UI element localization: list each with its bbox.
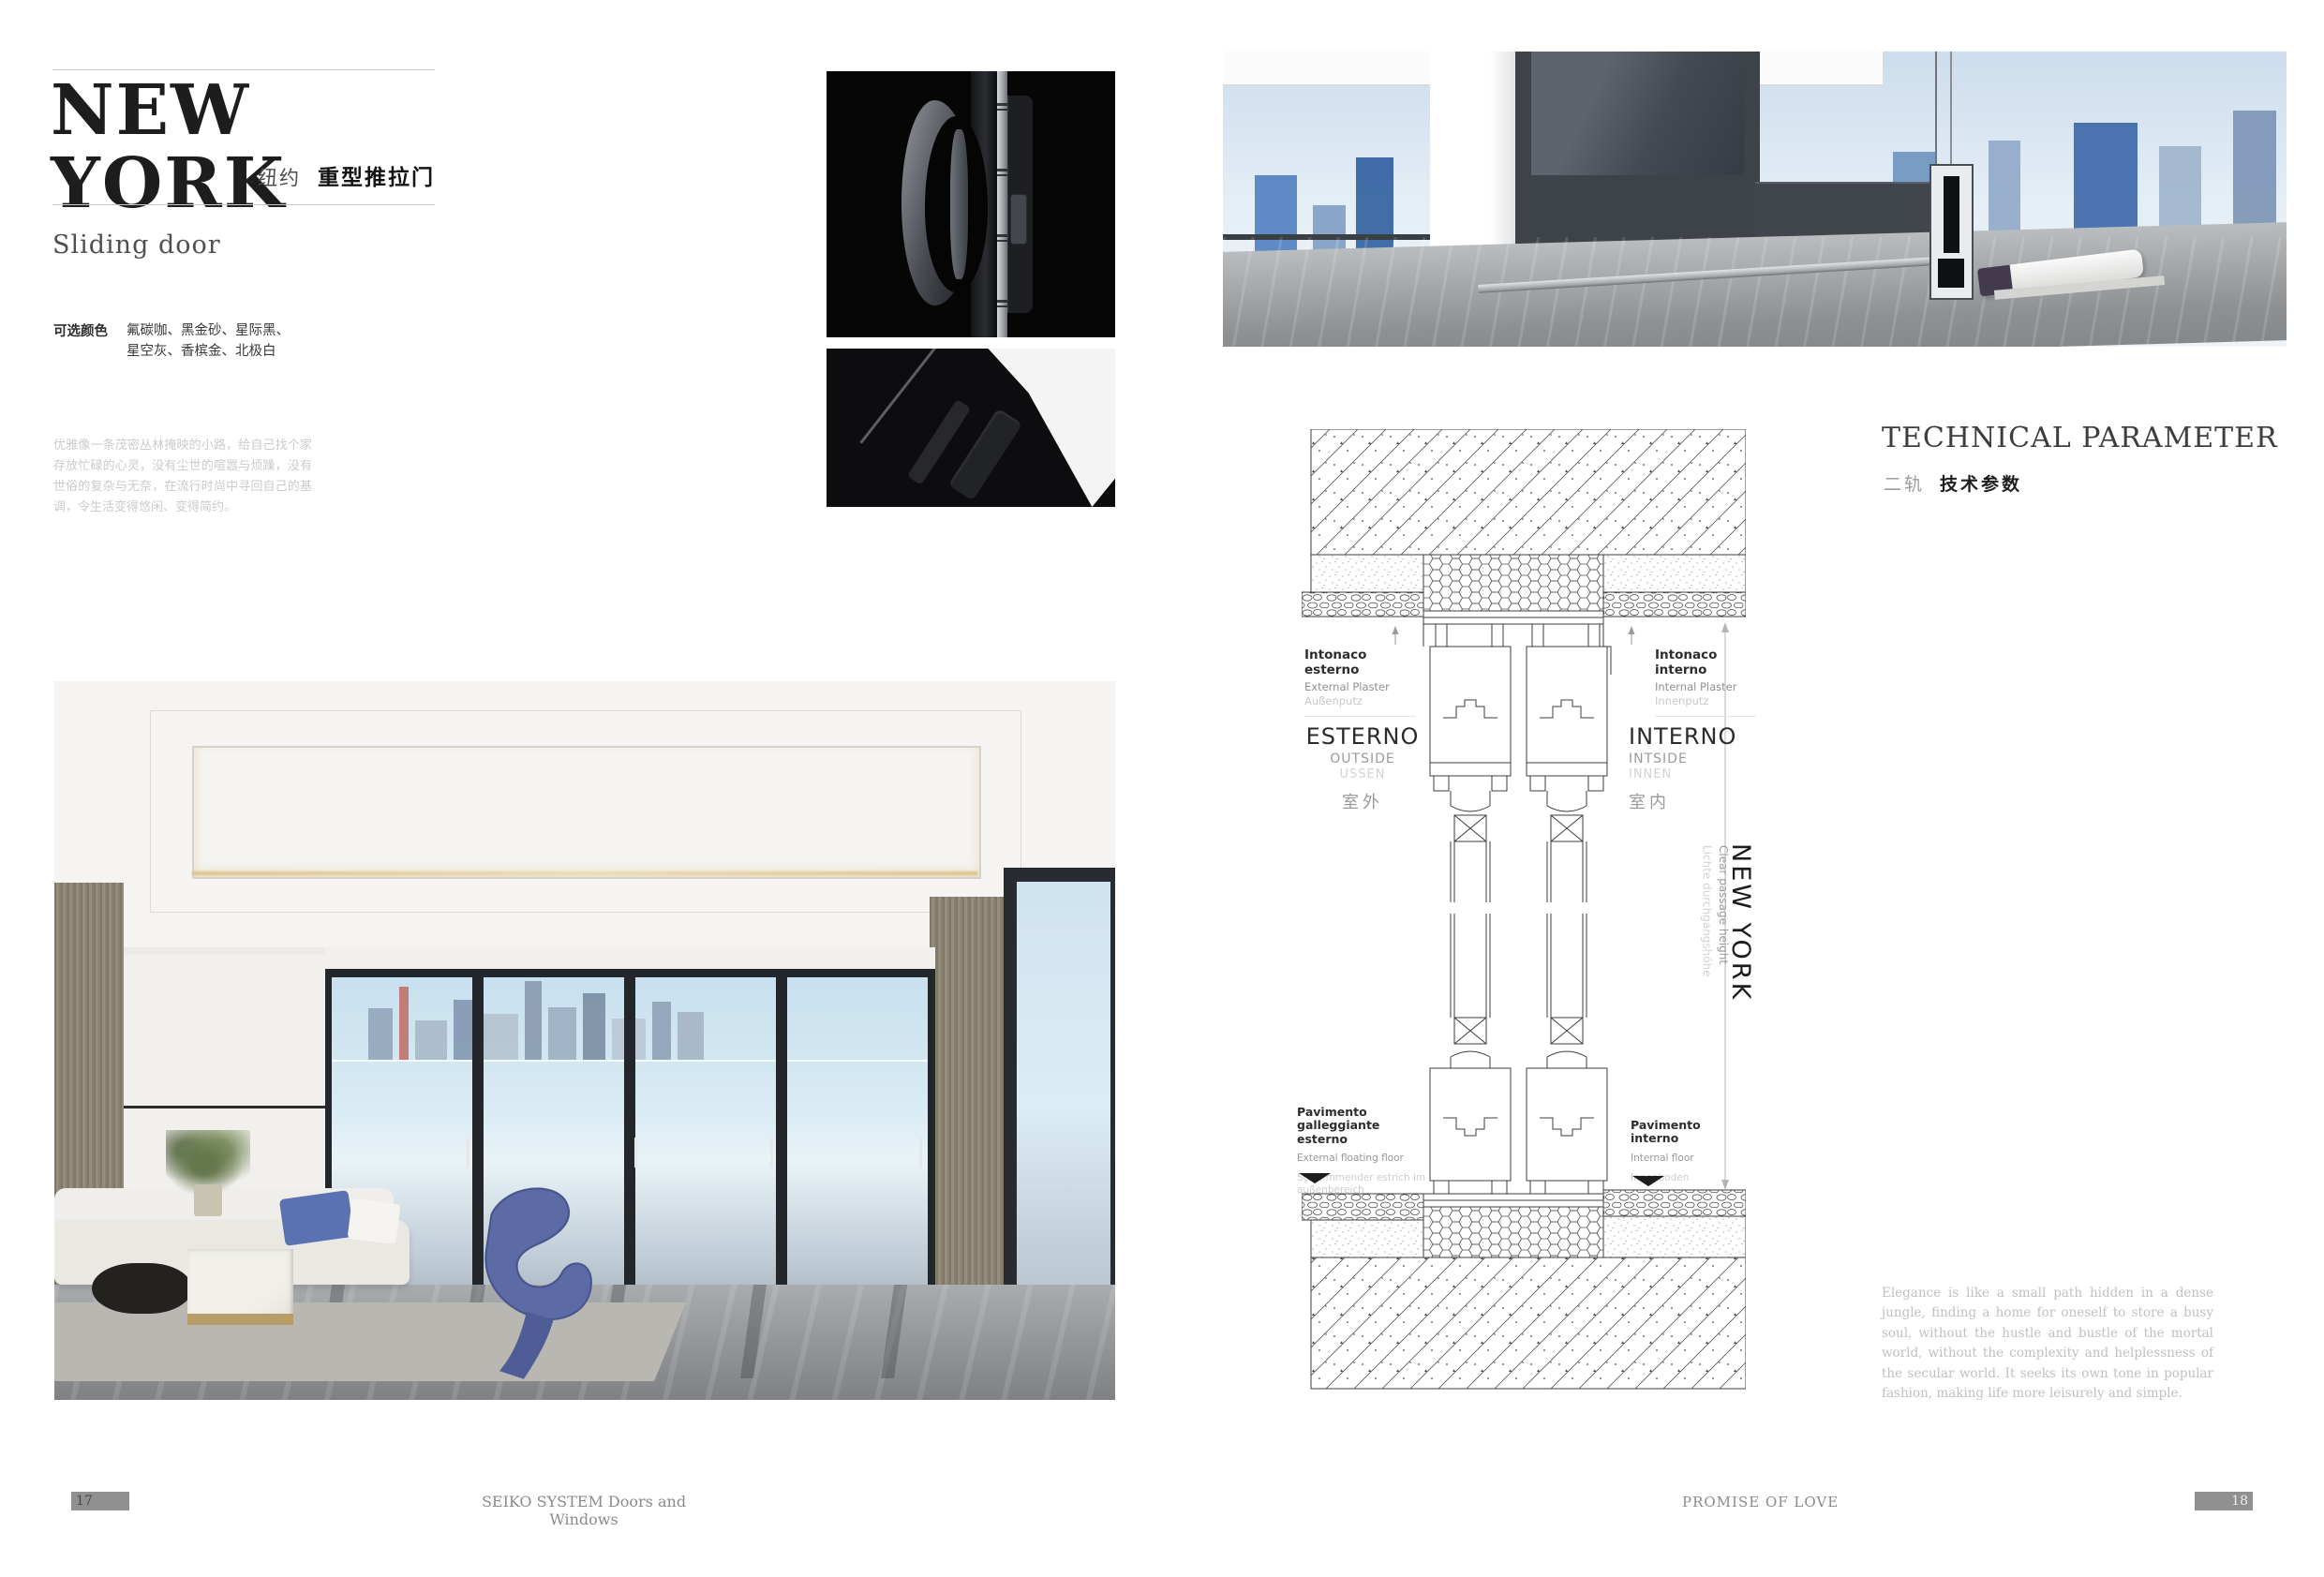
building xyxy=(454,1000,474,1059)
page-subtitle: 纽约重型推拉门 xyxy=(52,159,435,191)
pillow-white xyxy=(347,1198,400,1244)
label-line: USSEN xyxy=(1301,767,1424,781)
door-mullion xyxy=(776,969,787,1306)
door-handle-bar xyxy=(770,1138,773,1168)
color-options: 可选颜色 氟碳咖、黑金砂、星际黑、 星空灰、香槟金、北极白 xyxy=(53,320,290,363)
label-line: External Plaster xyxy=(1304,680,1415,693)
title-rule-bottom xyxy=(52,204,435,205)
door-handle-bar xyxy=(634,1138,637,1168)
ribbon-chair xyxy=(437,1177,660,1392)
label-exterior-side: ESTERNO OUTSIDE USSEN 室外 xyxy=(1301,723,1424,813)
profile-foot xyxy=(1938,259,1964,288)
building xyxy=(2233,111,2275,241)
coffee-table-gold-base xyxy=(187,1314,293,1325)
city-skyline xyxy=(332,977,962,1060)
white-column xyxy=(1430,52,1515,259)
floor-marker-triangle-ext xyxy=(1299,1173,1331,1183)
ceiling-tray-inner xyxy=(192,746,981,879)
door-latch xyxy=(1010,194,1027,245)
photo-track-detail xyxy=(1223,52,2287,347)
label-line: OUTSIDE xyxy=(1301,751,1424,766)
side-door-glass xyxy=(1017,882,1110,1291)
photo-handle-detail xyxy=(827,71,1115,337)
section-sub-bold: 技术参数 xyxy=(1940,474,2022,495)
chair-leg xyxy=(499,1312,554,1379)
label-external-plaster: Intonaco esterno External Plaster Außenp… xyxy=(1304,648,1415,717)
coffee-table-dark xyxy=(92,1263,193,1314)
label-line: Intonaco esterno xyxy=(1304,648,1415,677)
building xyxy=(1989,141,2020,235)
photo-interior xyxy=(54,681,1115,1400)
wall-above-door xyxy=(325,947,935,969)
label-line: Internal Plaster xyxy=(1655,680,1756,693)
label-line: INNEN xyxy=(1629,767,1752,781)
door-leaf-profile-2 xyxy=(1527,647,1607,1194)
brand-vertical-label: NEW YORK xyxy=(1726,843,1755,1002)
label-interior-side: INTERNO INTSIDE INNEN 室内 xyxy=(1629,723,1752,813)
section-drawing xyxy=(1302,429,1746,1398)
subtitle-cn-bold: 重型推拉门 xyxy=(318,166,435,190)
floor-marker-triangle-int xyxy=(1632,1176,1664,1186)
wall-accent-line xyxy=(124,1106,325,1108)
footer-brand: SEIKO SYSTEM Doors and Windows xyxy=(467,1493,701,1528)
bottom-track-profile xyxy=(1423,1194,1603,1207)
label-line: INTSIDE xyxy=(1629,751,1752,766)
profile-cross-section xyxy=(1929,164,1974,301)
description-cn: 优雅像一条茂密丛林掩映的小路，给自己找个家存放忙碌的心灵，没有尘世的喧嚣与烦躁，… xyxy=(53,436,312,518)
building xyxy=(481,1014,518,1059)
dimension-label-de: Lichte durchgangshöhe xyxy=(1698,845,1714,1061)
building xyxy=(548,1007,576,1060)
description-en: Elegance is like a small path hidden in … xyxy=(1882,1284,2213,1406)
cove-light xyxy=(192,871,977,875)
label-line: INTERNO xyxy=(1629,723,1752,750)
label-line: 室外 xyxy=(1301,789,1424,813)
catalog-spread: NEW YORK 纽约重型推拉门 Sliding door 可选颜色 氟碳咖、黑… xyxy=(0,0,2324,1577)
footer-slogan: PROMISE OF LOVE xyxy=(1682,1494,1839,1510)
sliding-door-side xyxy=(1004,868,1115,1314)
label-line: Intonaco interno xyxy=(1655,648,1756,677)
door-panel-glass xyxy=(1531,52,1744,175)
label-line: Pavimento galleggiante esterno xyxy=(1297,1106,1426,1146)
door-leaf-profile-1 xyxy=(1430,647,1511,1194)
door-handle-bar xyxy=(919,1138,922,1168)
label-line: Innenputz xyxy=(1655,695,1756,708)
page-number-left: 17 xyxy=(71,1492,129,1510)
section-title: TECHNICAL PARAMETER xyxy=(1882,422,2278,454)
building xyxy=(583,993,605,1059)
color-options-label: 可选颜色 xyxy=(53,320,108,363)
color-options-line2: 星空灰、香槟金、北极白 xyxy=(127,341,290,362)
page-title: NEW YORK xyxy=(51,75,439,220)
label-line: 室内 xyxy=(1629,789,1752,813)
door-handle-grip xyxy=(950,129,967,278)
building xyxy=(652,1002,671,1060)
section-subtitle: 二轨技术参数 xyxy=(1884,470,2022,496)
door-handle-bar xyxy=(467,1138,469,1168)
color-options-line1: 氟碳咖、黑金砂、星际黑、 xyxy=(127,320,290,341)
masonry-top xyxy=(1302,429,1746,617)
photo-corner-detail xyxy=(827,349,1115,507)
label-internal-plaster: Intonaco interno Internal Plaster Innenp… xyxy=(1655,648,1756,717)
subtitle-cn: 纽约 xyxy=(258,167,301,189)
vase xyxy=(194,1184,221,1217)
wood-panel-right xyxy=(930,897,1006,1300)
building xyxy=(678,1012,704,1060)
profile-core xyxy=(1944,176,1959,253)
tower-red xyxy=(399,987,409,1060)
glass-edge-line xyxy=(1950,52,1952,170)
color-options-list: 氟碳咖、黑金砂、星际黑、 星空灰、香槟金、北极白 xyxy=(127,320,290,363)
section-sub-light: 二轨 xyxy=(1884,474,1925,495)
building xyxy=(525,981,542,1060)
chair-ribbon xyxy=(485,1189,590,1320)
label-line: Internal floor xyxy=(1631,1153,1748,1164)
masonry-bottom xyxy=(1302,1190,1746,1389)
label-line: ESTERNO xyxy=(1301,723,1424,750)
building xyxy=(2074,123,2138,241)
label-line: Pavimento interno xyxy=(1631,1119,1748,1146)
glass-edge-line xyxy=(1935,52,1937,170)
label-line: External floating floor xyxy=(1297,1153,1426,1164)
label-internal-floor: Pavimento interno Internal floor Innenbo… xyxy=(1631,1119,1748,1184)
building xyxy=(368,1008,393,1060)
building xyxy=(415,1020,447,1060)
product-type-label: Sliding door xyxy=(52,231,221,260)
lock-strip-marks xyxy=(997,71,1007,337)
label-line: Außenputz xyxy=(1304,695,1415,708)
page-number-right: 18 xyxy=(2195,1492,2253,1510)
